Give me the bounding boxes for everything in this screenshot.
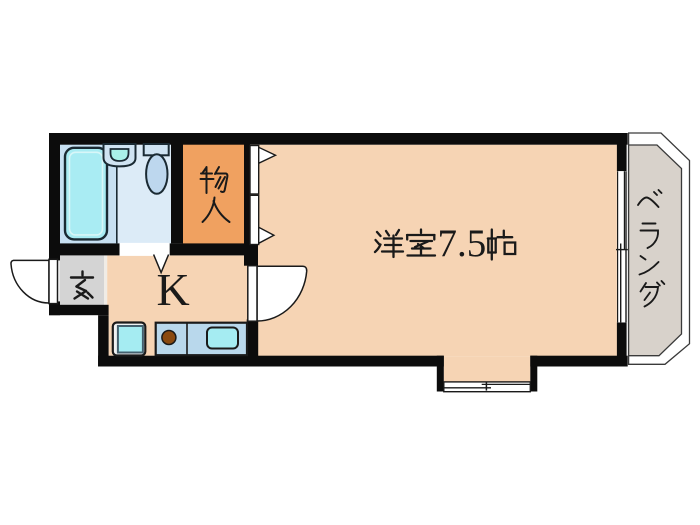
svg-text:K: K [157, 264, 190, 315]
svg-text:7.5: 7.5 [438, 222, 487, 265]
